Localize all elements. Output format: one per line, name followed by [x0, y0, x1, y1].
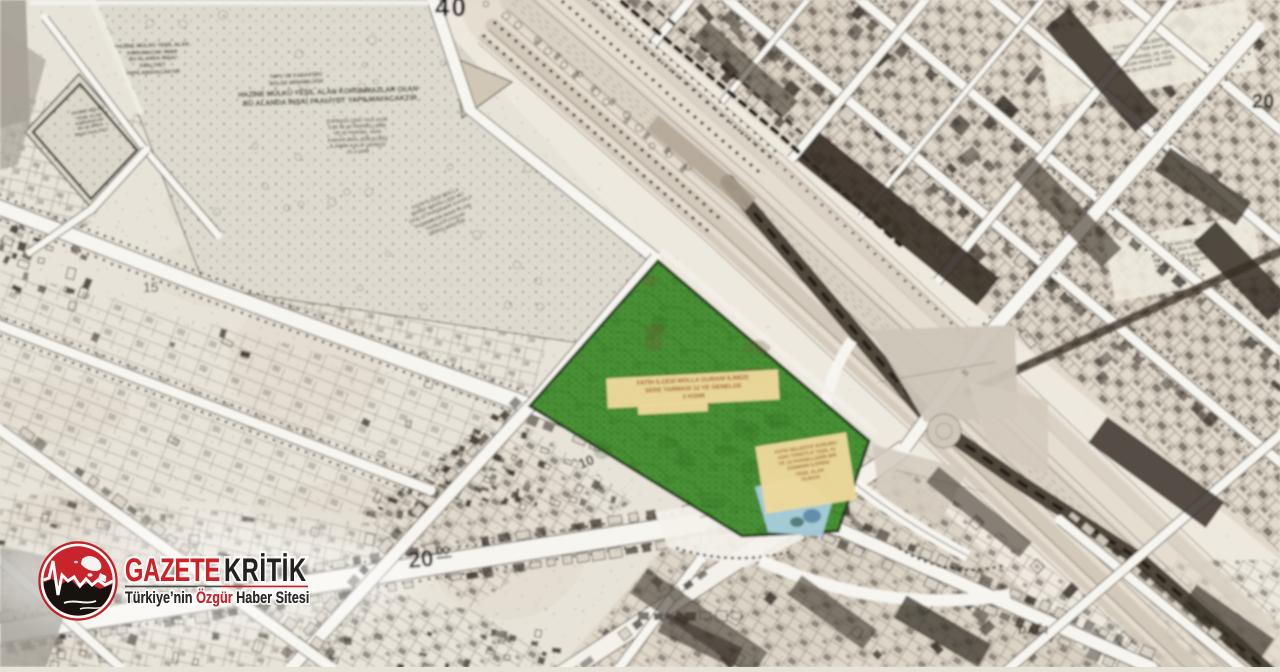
svg-text:KRİTİK: KRİTİK — [224, 552, 307, 587]
svg-text:GAZETE: GAZETE — [125, 552, 220, 587]
svg-text:20: 20 — [407, 545, 435, 574]
svg-text:20: 20 — [1252, 91, 1274, 113]
svg-text:3 KISMI: 3 KISMI — [682, 392, 705, 400]
svg-text:FAALİYET: FAALİYET — [140, 62, 167, 70]
svg-text:40: 40 — [435, 0, 468, 22]
svg-text:00: 00 — [435, 543, 450, 558]
svg-text:15: 15 — [143, 279, 159, 295]
svg-text:Türkiye’nin Özgür Haber Sitesi: Türkiye’nin Özgür Haber Sitesi — [125, 588, 309, 607]
svg-text:21.2.2449: 21.2.2449 — [347, 149, 370, 156]
svg-text:DAĞI: DAĞI — [1018, 622, 1048, 637]
